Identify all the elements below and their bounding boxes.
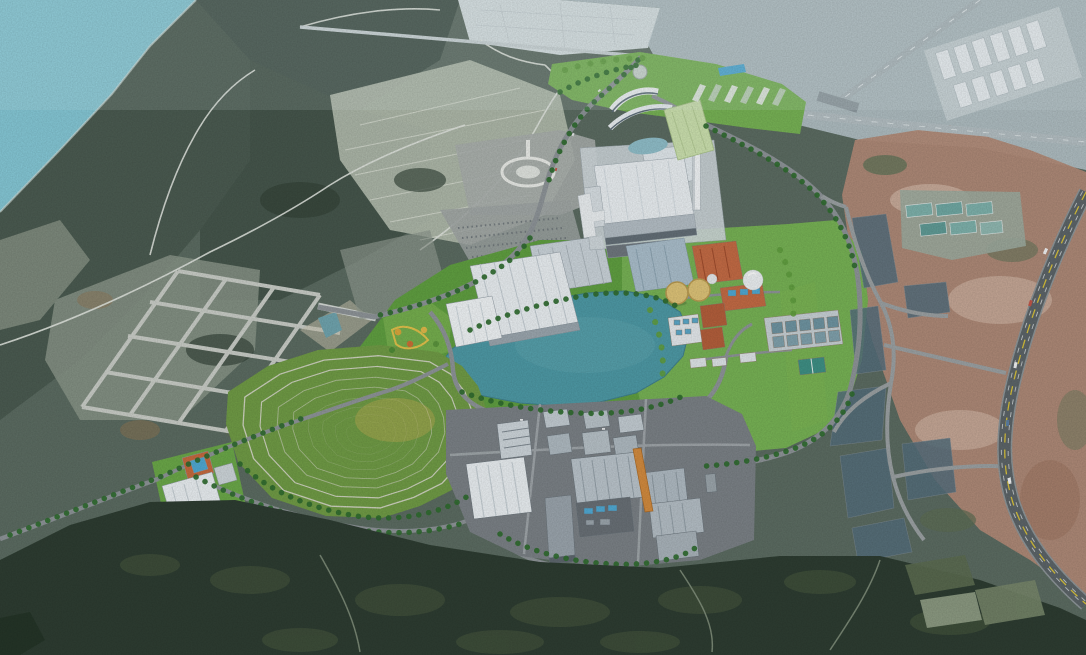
photo-grain xyxy=(0,0,1086,655)
industrial-park-rendering xyxy=(0,0,1086,655)
aerial-render: Aerial 3D architectural rendering of a p… xyxy=(0,0,1086,655)
